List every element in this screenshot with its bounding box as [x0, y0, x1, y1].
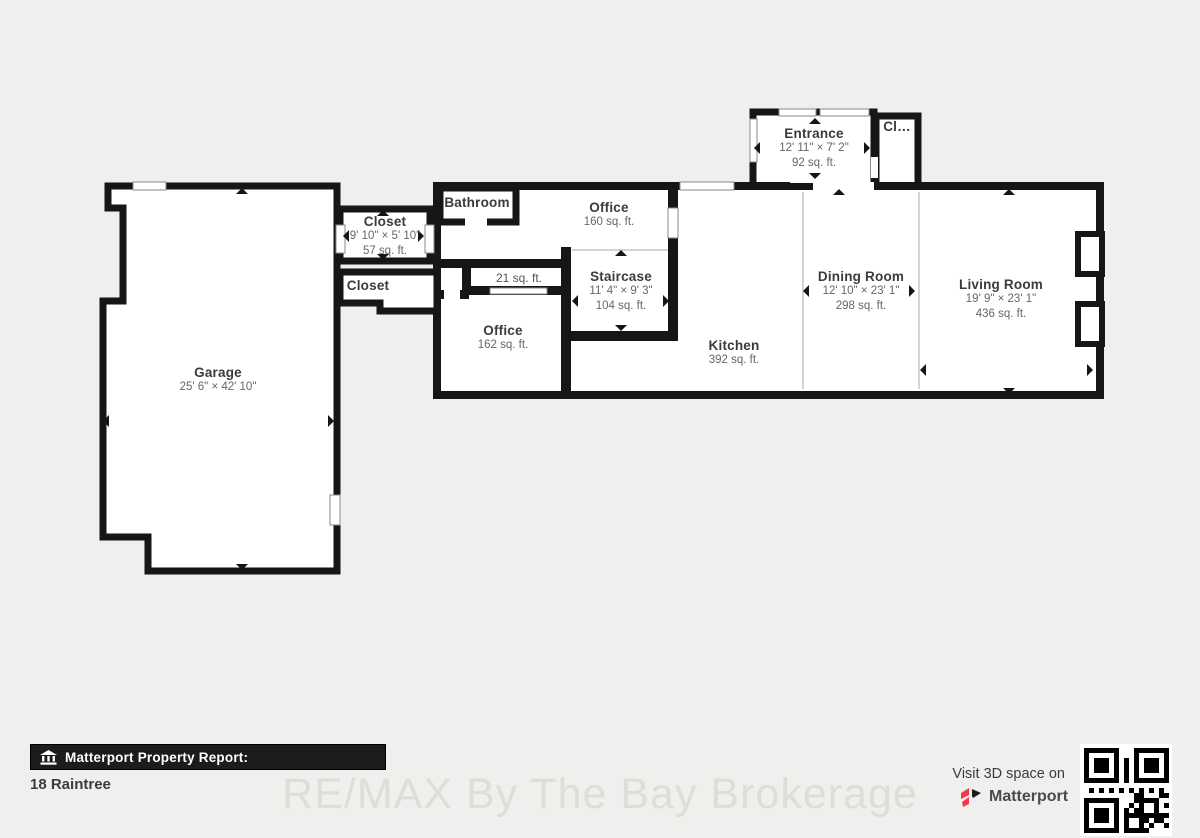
qr-pattern [1084, 748, 1169, 838]
closet-outlines [340, 209, 437, 311]
brokerage-watermark: RE/MAX By The Bay Brokerage [282, 770, 918, 819]
garage-outline [103, 186, 337, 571]
property-name: 18 Raintree [30, 776, 111, 793]
matterport-report-bar: Matterport Property Report: [30, 744, 386, 770]
matterport-brand-link[interactable]: Matterport [960, 787, 1068, 807]
matterport-brand-name: Matterport [989, 788, 1068, 806]
floorplan-page: { "colors": { "background": "#f0efed", "… [0, 0, 1200, 800]
bathroom-outline [440, 188, 516, 222]
qr-code[interactable] [1080, 744, 1172, 836]
floorplan-drawing [0, 0, 1200, 800]
report-bar-label: Matterport Property Report: [65, 750, 248, 765]
visit-3d-text: Visit 3D space on [952, 766, 1065, 782]
matterport-logo-icon [960, 787, 982, 807]
building-icon [40, 750, 57, 765]
